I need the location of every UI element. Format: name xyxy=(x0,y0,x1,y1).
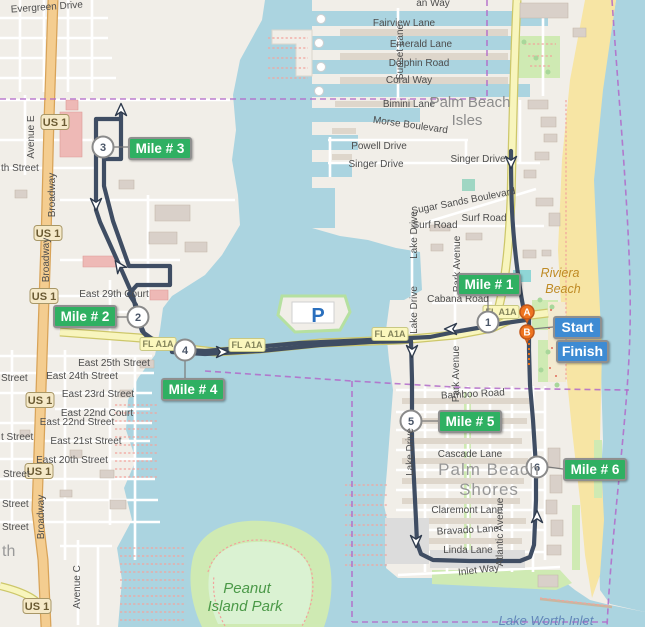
svg-text:FL A1A: FL A1A xyxy=(374,329,406,339)
svg-text:US 1: US 1 xyxy=(25,601,49,613)
place-label: th xyxy=(2,543,15,560)
finish-badge[interactable]: Finish xyxy=(556,340,609,363)
street-label: Broadway xyxy=(36,495,47,539)
svg-text:US 1: US 1 xyxy=(27,466,51,478)
mile-circle-1[interactable]: 1 xyxy=(478,312,499,333)
start-pins: A B xyxy=(520,305,534,343)
street-label: Sunset Lane xyxy=(395,23,406,80)
street-label: th Street xyxy=(1,163,39,174)
mile-6-badge[interactable]: Mile # 6 xyxy=(563,458,627,481)
svg-text:US 1: US 1 xyxy=(43,117,67,129)
svg-text:FL A1A: FL A1A xyxy=(142,339,174,349)
us1-shield: US 1 xyxy=(23,599,51,614)
us1-shield: US 1 xyxy=(26,393,54,408)
fl-a1a-shield: FL A1A xyxy=(372,328,408,341)
place-label: Peanut xyxy=(223,580,271,597)
street-label: East 24th Street xyxy=(46,371,118,382)
svg-text:4: 4 xyxy=(182,345,189,357)
street-label: East 21st Street xyxy=(50,436,121,447)
svg-text:US 1: US 1 xyxy=(32,291,56,303)
pin-b[interactable]: B xyxy=(520,325,534,343)
street-label: Evergreen Drive xyxy=(10,0,83,16)
place-label: Beach xyxy=(545,282,580,296)
canal-docks xyxy=(315,15,326,96)
street-label: Lake Drive xyxy=(409,211,420,259)
us1-shield: US 1 xyxy=(30,289,58,304)
place-label: Lake Worth Inlet xyxy=(499,613,595,627)
place-label: Palm Beach xyxy=(438,460,540,479)
svg-text:5: 5 xyxy=(408,416,414,428)
street-label: Avenue E xyxy=(26,115,37,159)
place-label: Island Park xyxy=(207,598,284,615)
street-label: Powell Drive xyxy=(351,141,407,152)
start-badge[interactable]: Start xyxy=(553,316,602,339)
street-label: Street xyxy=(1,373,28,384)
street-label: East 20th Street xyxy=(36,455,108,466)
svg-text:2: 2 xyxy=(135,312,141,324)
mile-circle-4[interactable]: 4 xyxy=(175,340,196,361)
street-label: an Way xyxy=(416,0,450,9)
mile-3-badge[interactable]: Mile # 3 xyxy=(128,137,192,160)
street-label: Atlantic Avenue xyxy=(495,497,506,566)
place-label: Shores xyxy=(459,480,519,499)
us1-shield: US 1 xyxy=(41,115,69,130)
street-label: Street xyxy=(2,499,29,510)
street-label: Singer Drive xyxy=(450,154,505,165)
mile-4-badge[interactable]: Mile # 4 xyxy=(161,378,225,401)
parking-icon: P xyxy=(311,305,324,327)
mile-5-badge[interactable]: Mile # 5 xyxy=(438,410,502,433)
street-label: Street xyxy=(2,522,29,533)
place-label: Riviera xyxy=(541,266,580,280)
fl-a1a-shield: FL A1A xyxy=(140,338,176,351)
mile-circle-3[interactable]: 3 xyxy=(93,137,114,158)
place-label: Palm Beach xyxy=(430,94,511,111)
mile-1-badge[interactable]: Mile # 1 xyxy=(457,273,521,296)
svg-text:A: A xyxy=(523,308,530,319)
street-label: Broadway xyxy=(41,238,52,282)
street-label: East 23rd Street xyxy=(62,389,134,400)
svg-text:1: 1 xyxy=(485,317,491,329)
fl-a1a-shield: FL A1A xyxy=(229,339,265,352)
street-label: Lake Drive xyxy=(409,286,420,334)
street-label: t Street xyxy=(1,432,33,443)
street-label: Coral Way xyxy=(386,75,432,86)
street-label: Linda Lane xyxy=(443,545,493,556)
svg-text:3: 3 xyxy=(100,142,106,154)
street-label: Singer Drive xyxy=(348,159,403,170)
mile-circle-2[interactable]: 2 xyxy=(128,307,149,328)
place-label: Isles xyxy=(452,112,483,129)
street-label: East 25th Street xyxy=(78,358,150,369)
street-label: Surf Road xyxy=(461,213,506,224)
svg-text:US 1: US 1 xyxy=(28,395,52,407)
street-label: East 29th Court xyxy=(79,289,149,300)
street-label: East 22nd Street xyxy=(40,417,115,428)
svg-text:FL A1A: FL A1A xyxy=(231,340,263,350)
street-label: Bimini Lane xyxy=(383,99,436,110)
mile-2-badge[interactable]: Mile # 2 xyxy=(53,305,117,328)
svg-text:B: B xyxy=(523,328,530,339)
street-label: Street xyxy=(3,469,30,480)
street-label: Claremont Lane xyxy=(431,505,503,516)
street-label: Lake Drive xyxy=(405,428,416,476)
street-label: Broadway xyxy=(47,173,58,217)
street-label: Cascade Lane xyxy=(438,449,503,460)
map-canvas[interactable]: US 1 US 1 US 1 US 1 US 1 US 1 FL A1A FL … xyxy=(0,0,645,627)
street-label: Avenue C xyxy=(72,565,83,609)
